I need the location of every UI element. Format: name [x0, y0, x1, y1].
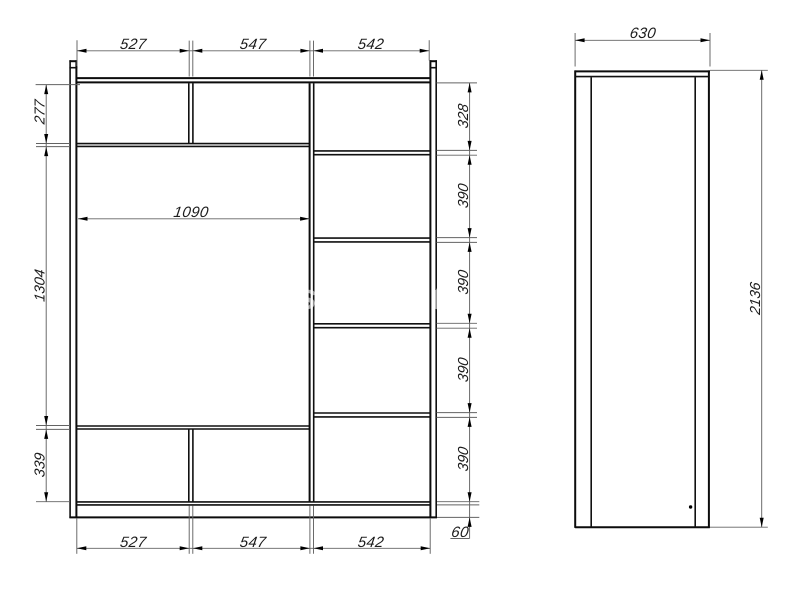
- svg-text:stolplit: stolplit: [297, 276, 447, 317]
- svg-text:2136: 2136: [748, 280, 764, 316]
- svg-text:547: 547: [239, 534, 268, 551]
- svg-text:527: 527: [119, 534, 148, 551]
- svg-text:390: 390: [456, 446, 472, 472]
- svg-text:1304: 1304: [32, 268, 48, 302]
- svg-text:542: 542: [357, 534, 386, 551]
- svg-text:542: 542: [357, 36, 386, 53]
- svg-text:547: 547: [239, 36, 268, 53]
- svg-text:328: 328: [456, 102, 472, 129]
- svg-text:527: 527: [119, 36, 148, 53]
- svg-text:390: 390: [456, 357, 472, 383]
- svg-text:1090: 1090: [172, 204, 210, 221]
- svg-text:277: 277: [32, 98, 48, 126]
- svg-text:339: 339: [32, 452, 48, 478]
- svg-text:390: 390: [456, 269, 472, 295]
- svg-text:390: 390: [456, 183, 472, 209]
- svg-text:630: 630: [629, 25, 658, 42]
- svg-text:60: 60: [450, 524, 470, 541]
